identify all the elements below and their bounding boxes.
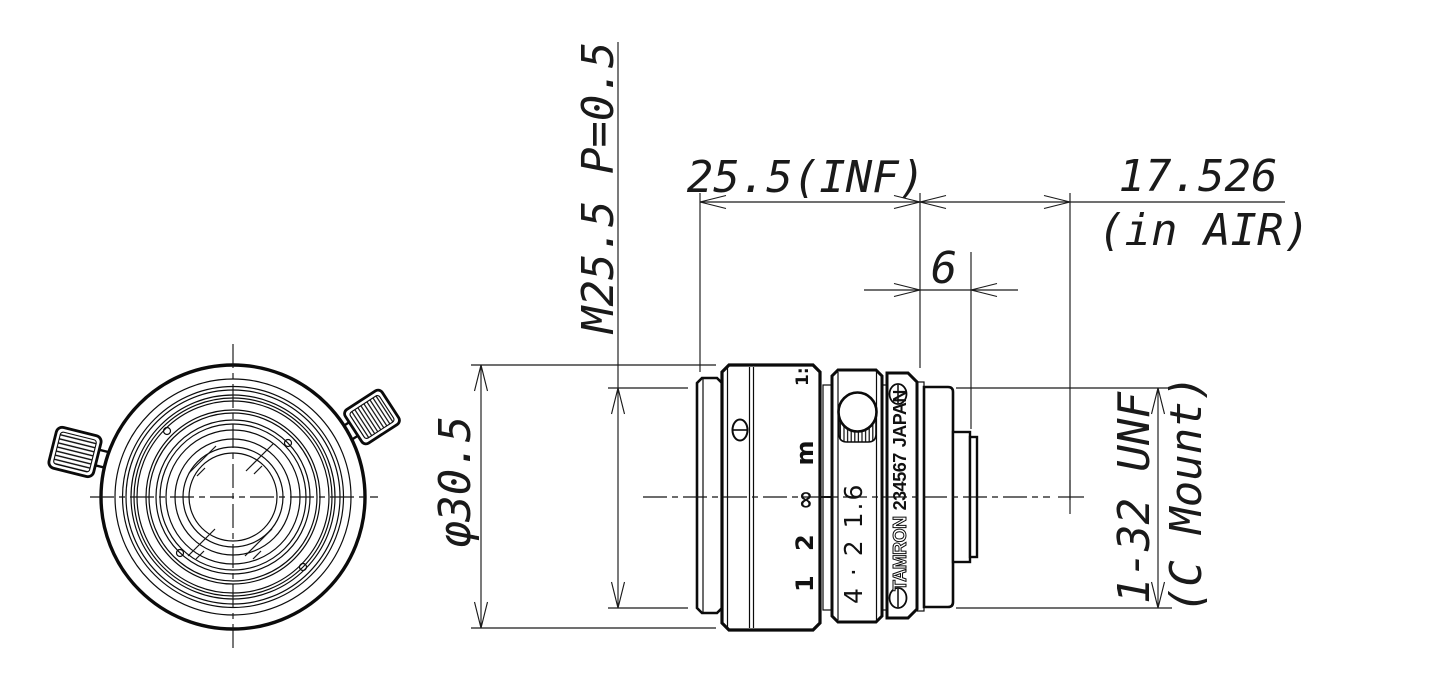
side-screw <box>733 420 748 441</box>
dim-mount-thread: 1-32 UNF <box>1109 391 1160 604</box>
dim-mount-name: (C Mount) <box>1161 375 1212 613</box>
front-view <box>48 344 402 651</box>
focus-scale: 1 2 ∞ m <box>791 433 819 592</box>
dim-outer-diameter: φ30.5 <box>430 416 481 548</box>
technical-drawing: 1: 1 2 ∞ m 4 · 2 1.6 TAMRON234567JAPAN <box>0 0 1440 696</box>
aperture-knob <box>839 393 877 443</box>
dim-length-to-flange: 25.5(INF) <box>687 152 925 203</box>
brand-name: TAMRON <box>890 516 910 591</box>
serial-number: 234567 <box>890 453 910 511</box>
dim-filter-thread: M25.5 P=0.5 <box>573 42 624 335</box>
aperture-scale: 4 · 2 1.6 <box>839 483 868 604</box>
front-rim <box>697 378 722 613</box>
aperture-ratio-marking: 1: <box>793 367 813 386</box>
dim-flange-focal-note: (in AIR) <box>1098 205 1310 256</box>
dim-thread-length: 6 <box>931 243 958 294</box>
country-marking: JAPAN <box>890 390 910 447</box>
dim-flange-focal: 17.526 <box>1119 151 1278 202</box>
brand-inscription: TAMRON234567JAPAN <box>890 390 910 591</box>
side-view: 1: 1 2 ∞ m 4 · 2 1.6 TAMRON234567JAPAN <box>643 365 1084 630</box>
